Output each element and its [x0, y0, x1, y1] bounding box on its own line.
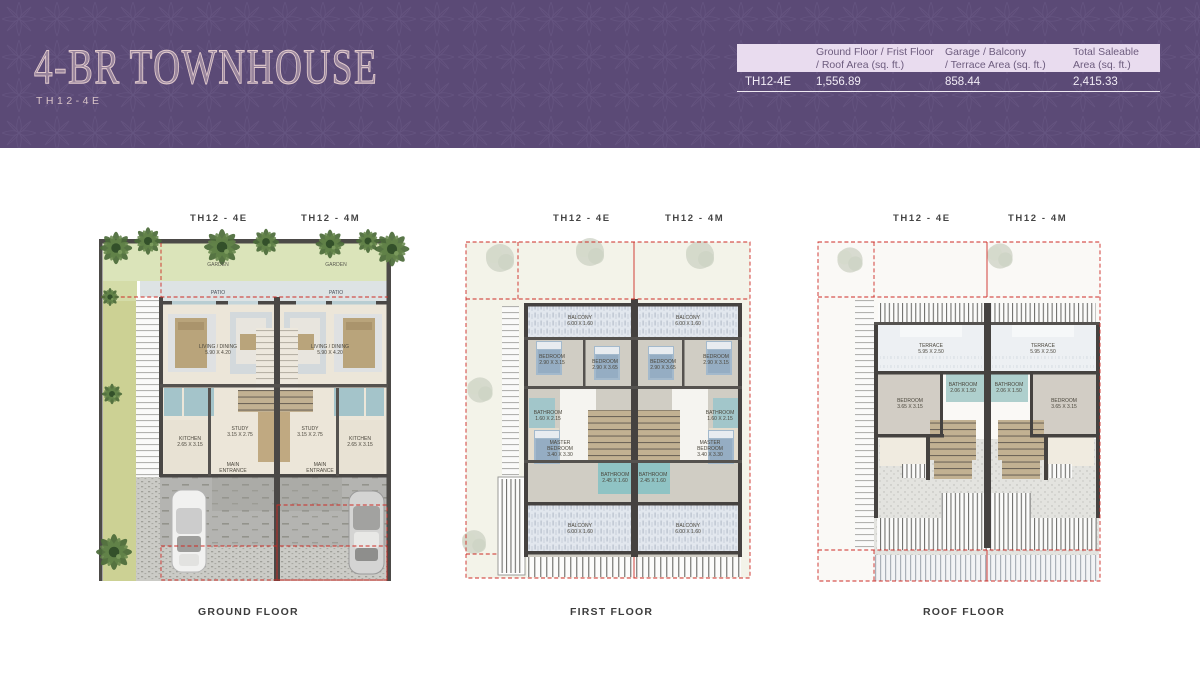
- svg-text:3.15 X 2.75: 3.15 X 2.75: [227, 432, 253, 438]
- svg-text:6.00 X 1.60: 6.00 X 1.60: [567, 529, 593, 535]
- svg-text:GARDEN: GARDEN: [325, 262, 347, 268]
- svg-text:2.06 X 1.50: 2.06 X 1.50: [996, 388, 1022, 394]
- svg-text:GARDEN: GARDEN: [207, 262, 229, 268]
- svg-text:3.65 X 3.15: 3.65 X 3.15: [1051, 404, 1077, 410]
- svg-text:5.95 X 2.50: 5.95 X 2.50: [918, 349, 944, 355]
- svg-text:3.40 X 3.30: 3.40 X 3.30: [697, 452, 723, 458]
- svg-text:1.60 X 2.15: 1.60 X 2.15: [707, 416, 733, 422]
- svg-text:2.90 X 3.15: 2.90 X 3.15: [703, 360, 729, 366]
- svg-text:2.06 X 1.50: 2.06 X 1.50: [950, 388, 976, 394]
- svg-text:PATIO: PATIO: [329, 290, 343, 296]
- svg-text:PATIO: PATIO: [211, 290, 225, 296]
- svg-text:2.65 X 3.15: 2.65 X 3.15: [347, 442, 373, 448]
- svg-text:2.90 X 3.15: 2.90 X 3.15: [539, 360, 565, 366]
- svg-text:ENTRANCE: ENTRANCE: [219, 468, 247, 474]
- svg-text:3.65 X 3.15: 3.65 X 3.15: [897, 404, 923, 410]
- svg-text:ENTRANCE: ENTRANCE: [306, 468, 334, 474]
- svg-text:2.65 X 3.15: 2.65 X 3.15: [177, 442, 203, 448]
- svg-text:5.90 X 4.20: 5.90 X 4.20: [317, 350, 343, 356]
- svg-text:6.00 X 1.60: 6.00 X 1.60: [675, 529, 701, 535]
- svg-text:2.45 X 1.60: 2.45 X 1.60: [640, 478, 666, 484]
- svg-text:6.00 X 1.60: 6.00 X 1.60: [567, 321, 593, 327]
- svg-text:5.95 X 2.50: 5.95 X 2.50: [1030, 349, 1056, 355]
- svg-text:6.00 X 1.60: 6.00 X 1.60: [675, 321, 701, 327]
- svg-text:5.90 X 4.20: 5.90 X 4.20: [205, 350, 231, 356]
- svg-text:1.60 X 2.15: 1.60 X 2.15: [535, 416, 561, 422]
- svg-text:2.45 X 1.60: 2.45 X 1.60: [602, 478, 628, 484]
- svg-text:3.15 X 2.75: 3.15 X 2.75: [297, 432, 323, 438]
- svg-text:3.40 X 3.30: 3.40 X 3.30: [547, 452, 573, 458]
- svg-text:2.90 X 3.65: 2.90 X 3.65: [592, 365, 618, 371]
- svg-text:2.90 X 3.65: 2.90 X 3.65: [650, 365, 676, 371]
